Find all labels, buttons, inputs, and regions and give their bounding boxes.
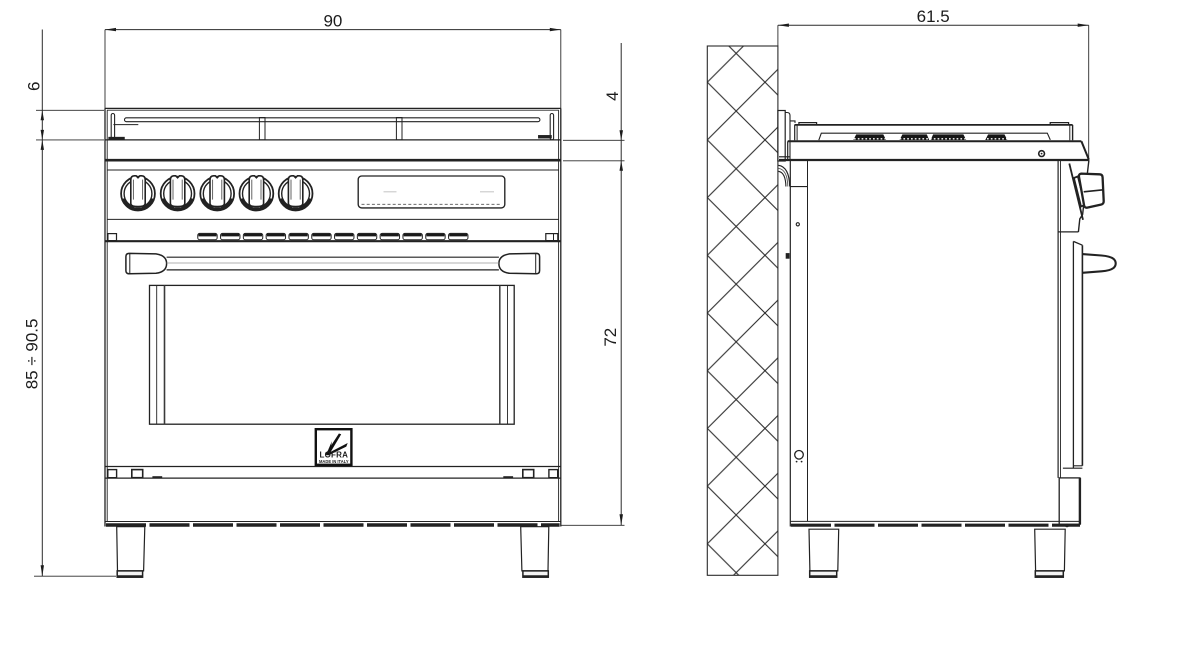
svg-text:72: 72 bbox=[601, 328, 620, 347]
svg-text:61.5: 61.5 bbox=[917, 7, 950, 26]
svg-text:90: 90 bbox=[323, 12, 342, 31]
svg-text:85 ÷ 90.5: 85 ÷ 90.5 bbox=[23, 319, 42, 390]
svg-text:6: 6 bbox=[24, 82, 43, 91]
svg-text:MADE IN ITALY: MADE IN ITALY bbox=[319, 459, 349, 464]
svg-text:4: 4 bbox=[603, 91, 622, 100]
